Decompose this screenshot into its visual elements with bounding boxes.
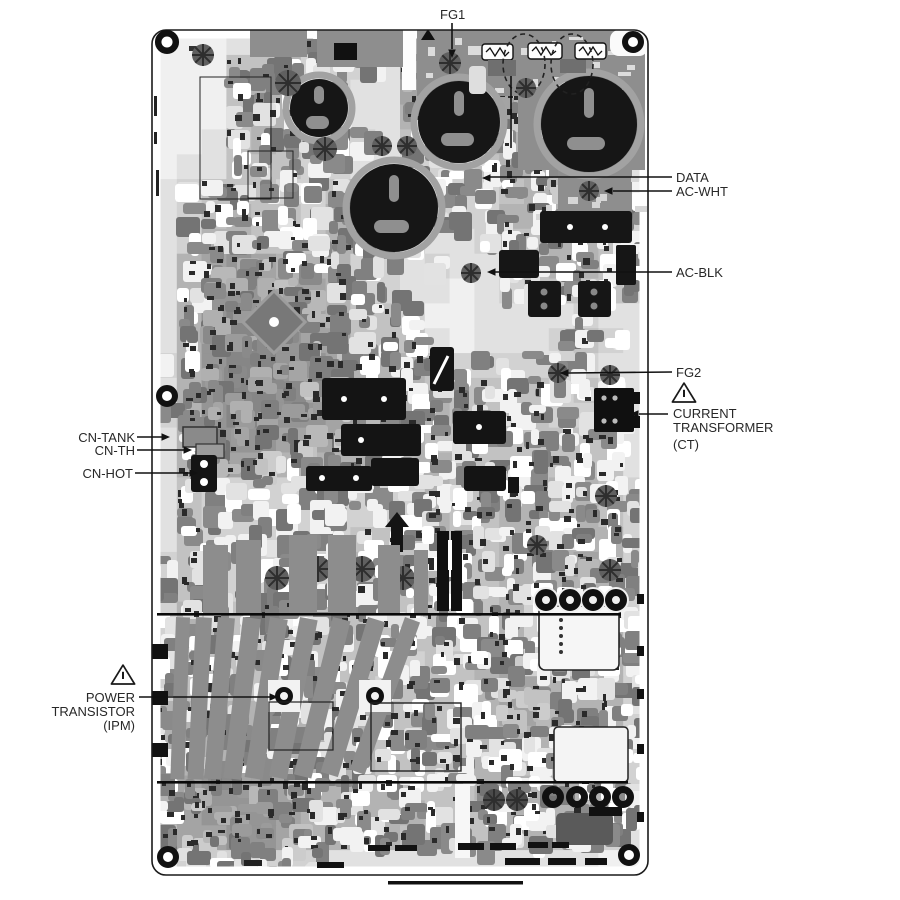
svg-text:(CT): (CT) — [673, 437, 699, 452]
svg-text:FG1: FG1 — [440, 7, 465, 22]
svg-text:FG2: FG2 — [676, 365, 701, 380]
svg-text:DATA: DATA — [676, 170, 709, 185]
svg-text:AC-WHT: AC-WHT — [676, 184, 728, 199]
svg-text:CURRENT: CURRENT — [673, 406, 737, 421]
svg-text:(IPM): (IPM) — [103, 718, 135, 733]
svg-text:POWER: POWER — [86, 690, 135, 705]
svg-text:AC-BLK: AC-BLK — [676, 265, 723, 280]
svg-text:TRANSISTOR: TRANSISTOR — [51, 704, 135, 719]
svg-text:TRANSFORMER: TRANSFORMER — [673, 420, 773, 435]
svg-text:CN-TH: CN-TH — [95, 443, 135, 458]
svg-text:CN-HOT: CN-HOT — [82, 466, 133, 481]
